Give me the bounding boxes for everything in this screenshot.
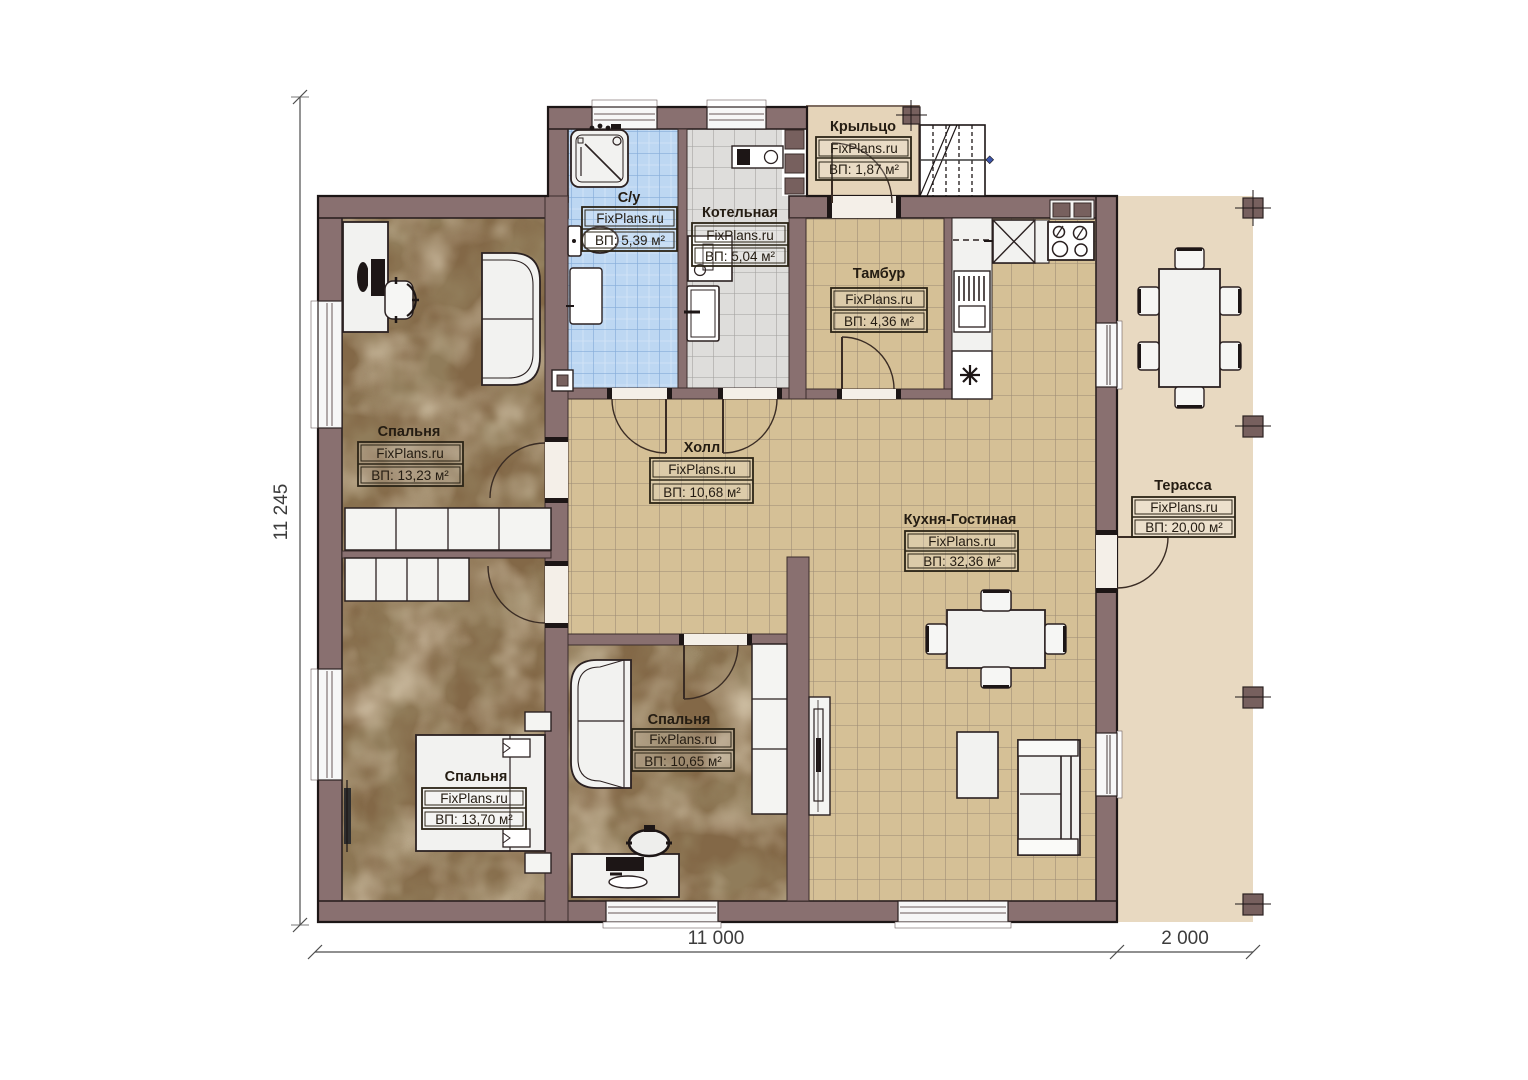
svg-text:ВП: 4,36 м²: ВП: 4,36 м² (844, 314, 915, 329)
svg-text:Холл: Холл (684, 440, 720, 456)
svg-text:FixPlans.ru: FixPlans.ru (830, 141, 898, 156)
svg-text:Терасса: Терасса (1154, 478, 1212, 494)
svg-text:ВП: 20,00 м²: ВП: 20,00 м² (1145, 520, 1223, 535)
svg-text:Котельная: Котельная (702, 205, 778, 221)
svg-text:FixPlans.ru: FixPlans.ru (706, 228, 774, 243)
svg-text:FixPlans.ru: FixPlans.ru (649, 732, 717, 747)
svg-text:Спальня: Спальня (378, 424, 441, 440)
svg-text:Кухня-Гостиная: Кухня-Гостиная (904, 512, 1017, 528)
svg-text:FixPlans.ru: FixPlans.ru (376, 446, 444, 461)
svg-text:2 000: 2 000 (1161, 928, 1209, 949)
svg-text:FixPlans.ru: FixPlans.ru (1150, 500, 1218, 515)
svg-text:ВП: 32,36 м²: ВП: 32,36 м² (923, 554, 1001, 569)
svg-text:FixPlans.ru: FixPlans.ru (845, 292, 913, 307)
svg-text:ВП: 10,65 м²: ВП: 10,65 м² (644, 754, 722, 769)
svg-text:ВП: 13,23 м²: ВП: 13,23 м² (371, 468, 449, 483)
svg-text:Спальня: Спальня (445, 769, 508, 785)
svg-text:Спальня: Спальня (648, 712, 711, 728)
svg-text:FixPlans.ru: FixPlans.ru (928, 534, 996, 549)
svg-text:С/у: С/у (618, 190, 641, 206)
svg-text:FixPlans.ru: FixPlans.ru (440, 791, 508, 806)
svg-text:ВП: 5,04 м²: ВП: 5,04 м² (705, 249, 776, 264)
svg-text:ВП: 1,87 м²: ВП: 1,87 м² (829, 162, 900, 177)
svg-text:ВП: 13,70 м²: ВП: 13,70 м² (435, 812, 513, 827)
svg-text:11 245: 11 245 (271, 484, 292, 541)
svg-text:Тамбур: Тамбур (853, 266, 906, 282)
svg-text:ВП: 10,68 м²: ВП: 10,68 м² (663, 485, 741, 500)
svg-text:11 000: 11 000 (688, 928, 745, 949)
svg-text:FixPlans.ru: FixPlans.ru (596, 211, 664, 226)
svg-text:FixPlans.ru: FixPlans.ru (668, 462, 736, 477)
svg-text:Крыльцо: Крыльцо (830, 119, 896, 135)
svg-text:ВП: 5,39 м²: ВП: 5,39 м² (595, 233, 666, 248)
